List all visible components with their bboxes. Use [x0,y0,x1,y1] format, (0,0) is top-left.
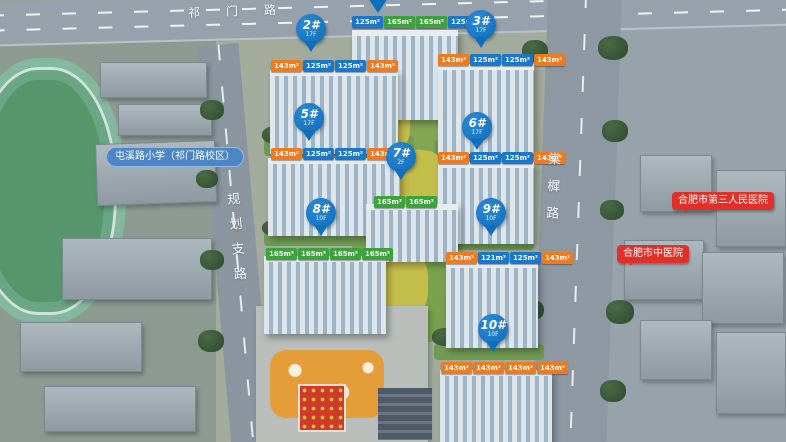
pin-building-10[interactable]: 10# 10F [478,314,508,344]
area-tag: 165m² [266,248,297,260]
parking-canopy [378,388,432,440]
area-tag: 143m² [438,54,469,66]
pin-building-5[interactable]: 5# 17F [294,103,324,133]
unit-tags-building-10: 143m² 143m² 143m² 143m² [441,362,568,374]
area-tag: 125m² [335,148,366,160]
school-building [118,104,212,136]
area-tag: 143m² [542,252,573,264]
area-tag: 125m² [470,54,501,66]
pin-number: 5# [301,109,318,120]
pin-floors: 2F [397,159,404,166]
tree [200,250,224,270]
area-tag: 143m² [271,60,302,72]
tree [598,36,628,60]
pin-number: 3# [473,16,490,27]
area-tag: 165m² [406,196,437,208]
pin-building-6[interactable]: 6# 17F [462,112,492,142]
unit-tags-building-9: 143m² 121m² 125m² 143m² [446,252,573,264]
pin-building-1-tip-cropped [368,0,388,23]
pin-number: 2# [303,20,320,31]
area-tag: 143m² [537,362,568,374]
area-tag: 125m² [303,148,334,160]
city-building [702,252,784,324]
building-3 [438,64,534,154]
lane-marking [0,0,786,17]
site-plan-canvas: 祁门路 规划支路 棠樨路 [0,0,786,442]
area-tag: 143m² [446,252,477,264]
pin-number: 9# [483,204,500,215]
unit-tags-building-8: 165m² 165m² 165m² 165m² [266,248,393,260]
school-label[interactable]: 屯溪路小学（祁门路校区） [106,147,244,167]
unit-tags-building-5: 143m² 125m² 125m² 143m² [271,148,398,160]
city-building [20,322,142,372]
pin-number: 10# [480,320,505,331]
tree [606,300,634,324]
area-tag: 165m² [374,196,405,208]
area-tag: 125m² [510,252,541,264]
area-tag: 125m² [303,60,334,72]
area-tag: 143m² [367,60,398,72]
pin-number: 6# [469,118,486,129]
area-tag: 165m² [330,248,361,260]
area-tag: 165m² [384,16,415,28]
city-building [44,386,196,432]
area-tag: 143m² [438,152,469,164]
pin-floors: 10F [485,215,496,222]
area-tag: 125m² [502,152,533,164]
pin-building-8[interactable]: 8# 10F [306,198,336,228]
tree [198,330,224,352]
area-tag: 143m² [473,362,504,374]
pin-building-7[interactable]: 7# 2F [386,142,416,172]
school-building [100,62,207,98]
pin-floors: 17F [303,120,314,127]
tree [200,100,224,120]
area-tag: 165m² [298,248,329,260]
playground-court [298,384,346,432]
pin-number: 7# [393,148,410,159]
area-tag: 143m² [534,54,565,66]
pin-building-3[interactable]: 3# 17F [466,10,496,40]
city-building [640,320,712,380]
area-tag: 121m² [478,252,509,264]
area-tag: 125m² [502,54,533,66]
road-label-right: 棠樨路 [541,152,563,234]
pin-floors: 10F [315,215,326,222]
building-8 [264,256,386,334]
area-tag: 165m² [416,16,447,28]
unit-tags-building-7: 165m² 165m² [374,196,437,208]
tree [196,170,218,188]
lane-marking [569,0,587,442]
unit-tags-building-3: 143m² 125m² 125m² 143m² [438,54,565,66]
area-tag: 143m² [505,362,536,374]
area-tag: 165m² [362,248,393,260]
unit-tags-building-2: 143m² 125m² 125m² 143m² [271,60,398,72]
city-building [716,332,786,414]
pin-floors: 17F [471,129,482,136]
tree [600,380,626,402]
pin-number: 8# [313,204,330,215]
tree [600,200,624,220]
hospital-east-label[interactable]: 合肥市第三人民医院 [672,192,774,210]
pin-building-9[interactable]: 9# 10F [476,198,506,228]
school-building [62,238,212,300]
pin-floors: 17F [305,31,316,38]
pin-floors: 10F [487,331,498,338]
tree [602,120,628,142]
area-tag: 125m² [335,60,366,72]
area-tag: 143m² [271,148,302,160]
area-tag: 143m² [441,362,472,374]
pin-floors: 17F [475,27,486,34]
building-10 [440,370,552,442]
building-2 [270,70,398,154]
hospital-south-label[interactable]: 合肥市中医院 [617,245,689,263]
pin-building-2[interactable]: 2# 17F [296,14,326,44]
